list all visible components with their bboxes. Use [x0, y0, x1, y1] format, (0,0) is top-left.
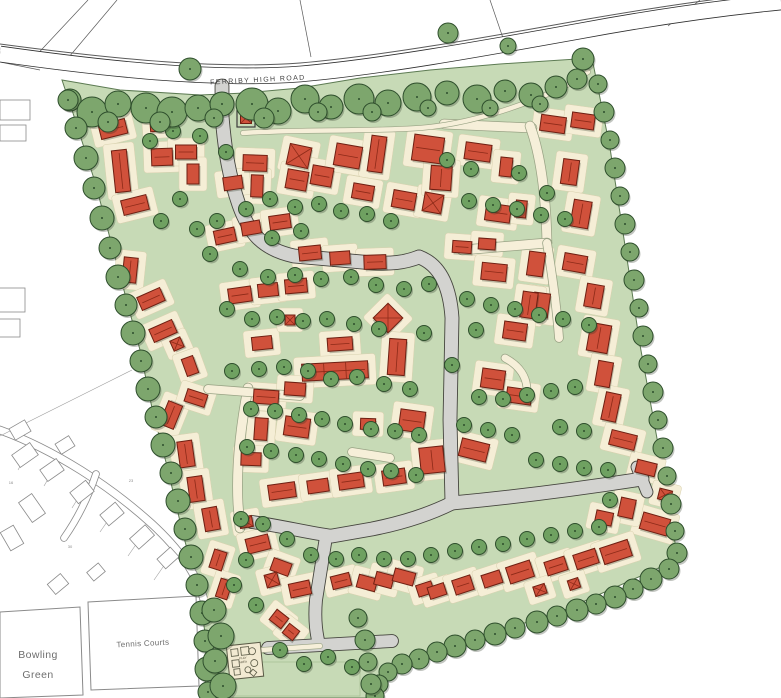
existing-house-outline [0, 525, 23, 551]
tree-center-dot [353, 323, 355, 325]
tree-center-dot [662, 447, 664, 449]
building [176, 145, 199, 161]
tree-center-dot [530, 94, 532, 96]
tree-center-dot [231, 370, 233, 372]
existing-house-outline [0, 100, 30, 120]
building [480, 262, 508, 284]
roof-line [155, 157, 170, 158]
building-footprint [499, 157, 513, 177]
tree-center-dot [246, 446, 248, 448]
tree-center-dot [657, 419, 659, 421]
tree-center-dot [327, 656, 329, 658]
building [480, 368, 507, 392]
tree-center-dot [502, 398, 504, 400]
tree-center-dot [170, 472, 172, 474]
tree-center-dot [666, 475, 668, 477]
site-plan-map: FERRIBY HIGH ROADBowlingGreenTennis Cour… [0, 0, 781, 698]
building [570, 112, 597, 132]
tree-center-dot [624, 223, 626, 225]
building [526, 251, 547, 279]
tree-center-dot [317, 111, 319, 113]
tree-center-dot [582, 58, 584, 60]
tree-center-dot [357, 617, 359, 619]
tree-center-dot [340, 210, 342, 212]
tree-center-dot [576, 78, 578, 80]
tree-center-dot [609, 499, 611, 501]
tree-center-dot [576, 609, 578, 611]
tree-center-dot [255, 604, 257, 606]
tree-center-dot [358, 98, 360, 100]
tree-center-dot [258, 368, 260, 370]
tree-center-dot [199, 135, 201, 137]
tree-center-dot [222, 685, 224, 687]
tree-center-dot [652, 391, 654, 393]
tree-center-dot [514, 627, 516, 629]
tree-center-dot [583, 430, 585, 432]
tree-center-dot [270, 450, 272, 452]
tree-center-dot [418, 658, 420, 660]
tree-center-dot [619, 195, 621, 197]
tree-center-dot [428, 283, 430, 285]
tree-center-dot [676, 552, 678, 554]
tree-center-dot [283, 366, 285, 368]
tree-center-dot [371, 111, 373, 113]
building [223, 175, 245, 193]
tree-center-dot [216, 220, 218, 222]
tree-center-dot [213, 117, 215, 119]
tree-center-dot [466, 298, 468, 300]
building [243, 155, 269, 174]
tree-center-dot [300, 230, 302, 232]
tree-center-dot [383, 383, 385, 385]
tree-center-dot [367, 661, 369, 663]
tree-center-dot [117, 103, 119, 105]
tree-center-dot [476, 98, 478, 100]
existing-house-outline [47, 574, 68, 595]
tree-center-dot [320, 278, 322, 280]
tree-center-dot [574, 386, 576, 388]
existing-house-outline [100, 502, 124, 526]
building [452, 240, 473, 255]
tree-center-dot [196, 228, 198, 230]
tree-center-dot [196, 584, 198, 586]
tree-center-dot [559, 426, 561, 428]
tree-center-dot [401, 663, 403, 665]
building-footprint [223, 175, 244, 191]
plot-number: 30 [68, 544, 73, 549]
tree-center-dot [526, 538, 528, 540]
tree-center-dot [490, 304, 492, 306]
tree-center-dot [67, 99, 69, 101]
tree-center-dot [91, 111, 93, 113]
tree-center-dot [474, 639, 476, 641]
building [387, 338, 408, 377]
tree-center-dot [240, 518, 242, 520]
tree-center-dot [559, 463, 561, 465]
tree-center-dot [274, 410, 276, 412]
tree-center-dot [356, 376, 358, 378]
tree-center-dot [251, 103, 253, 105]
building [430, 165, 454, 193]
building [151, 148, 174, 168]
building [187, 164, 201, 186]
building [560, 159, 581, 188]
building-footprint [618, 497, 637, 519]
tree-center-dot [75, 127, 77, 129]
existing-house-outline [0, 288, 25, 312]
tree-center-dot [378, 328, 380, 330]
existing-house-outline [87, 563, 106, 581]
tree-center-dot [416, 96, 418, 98]
tree-center-dot [595, 603, 597, 605]
bowling-green-label-2: Green [22, 669, 53, 681]
tree-center-dot [204, 640, 206, 642]
tree-center-dot [321, 418, 323, 420]
tree-center-dot [514, 308, 516, 310]
tree-center-dot [318, 203, 320, 205]
tree-center-dot [516, 208, 518, 210]
tree-center-dot [451, 364, 453, 366]
existing-house-outline [55, 436, 75, 455]
tree-center-dot [269, 198, 271, 200]
tree-center-dot [330, 106, 332, 108]
tree-center-dot [117, 276, 119, 278]
tree-center-dot [423, 332, 425, 334]
tree-center-dot [375, 284, 377, 286]
tree-center-dot [403, 288, 405, 290]
tree-center-dot [330, 378, 332, 380]
tree-center-dot [454, 645, 456, 647]
tree-center-dot [536, 621, 538, 623]
building-footprint [307, 478, 330, 494]
tree-center-dot [177, 500, 179, 502]
building [539, 114, 568, 136]
tree-center-dot [132, 332, 134, 334]
tree-center-dot [597, 83, 599, 85]
tree-center-dot [670, 503, 672, 505]
building-footprint [241, 220, 262, 236]
tree-center-dot [550, 390, 552, 392]
tree-center-dot [214, 660, 216, 662]
tree-center-dot [650, 578, 652, 580]
tree-center-dot [614, 167, 616, 169]
tree-center-dot [538, 314, 540, 316]
tree-center-dot [562, 318, 564, 320]
tree-center-dot [502, 543, 504, 545]
tree-center-dot [125, 304, 127, 306]
tree-center-dot [409, 388, 411, 390]
tree-center-dot [366, 213, 368, 215]
tree-center-dot [190, 556, 192, 558]
tree-center-dot [526, 394, 528, 396]
building [298, 245, 323, 263]
tree-center-dot [511, 434, 513, 436]
tree-center-dot [642, 335, 644, 337]
tree-center-dot [342, 463, 344, 465]
tree-center-dot [390, 470, 392, 472]
tree-center-dot [226, 308, 228, 310]
tree-center-dot [609, 139, 611, 141]
tree-center-dot [145, 107, 147, 109]
tree-center-dot [307, 370, 309, 372]
tree-center-dot [415, 474, 417, 476]
tree-center-dot [351, 666, 353, 668]
plot-number: 16 [9, 480, 14, 485]
building [502, 321, 529, 343]
building [364, 255, 388, 272]
tree-center-dot [304, 98, 306, 100]
tree-center-dot [335, 558, 337, 560]
tree-center-dot [358, 554, 360, 556]
tree-center-dot [638, 307, 640, 309]
tree-center-dot [350, 276, 352, 278]
tree-center-dot [303, 663, 305, 665]
building-footprint [284, 382, 306, 396]
tree-center-dot [564, 218, 566, 220]
existing-street [64, 474, 96, 538]
tree-center-dot [518, 172, 520, 174]
tree-center-dot [263, 117, 265, 119]
building [284, 382, 307, 399]
tree-center-dot [478, 396, 480, 398]
building [254, 418, 270, 443]
tree-center-dot [184, 528, 186, 530]
plot-number: 23 [129, 478, 134, 483]
tree-center-dot [494, 633, 496, 635]
building [327, 337, 354, 354]
tree-center-dot [487, 429, 489, 431]
building [285, 315, 297, 327]
tree-center-dot [207, 691, 209, 693]
tree-center-dot [344, 423, 346, 425]
building [333, 143, 364, 171]
tree-center-dot [387, 671, 389, 673]
tree-center-dot [162, 444, 164, 446]
tree-center-dot [394, 430, 396, 432]
tree-center-dot [271, 237, 273, 239]
building-footprint [330, 251, 351, 265]
tree-center-dot [225, 151, 227, 153]
building-footprint [251, 175, 264, 197]
tree-center-dot [262, 523, 264, 525]
tree-center-dot [546, 192, 548, 194]
high-road-surface [0, 2, 781, 76]
tree-center-dot [213, 609, 215, 611]
building [478, 238, 497, 252]
tree-center-dot [370, 428, 372, 430]
tree-center-dot [251, 318, 253, 320]
building [422, 192, 446, 216]
tree-center-dot [209, 253, 211, 255]
tree-center-dot [109, 247, 111, 249]
tree-center-dot [504, 90, 506, 92]
tree-center-dot [93, 187, 95, 189]
tree-center-dot [85, 157, 87, 159]
tree-center-dot [447, 32, 449, 34]
tree-center-dot [107, 121, 109, 123]
tree-center-dot [367, 468, 369, 470]
existing-house-outline [0, 125, 26, 141]
tree-center-dot [489, 107, 491, 109]
building [251, 335, 274, 352]
play-area-label-2: AREA [239, 660, 248, 665]
tree-center-dot [629, 251, 631, 253]
tree-center-dot [598, 526, 600, 528]
tree-center-dot [446, 92, 448, 94]
tree-center-dot [647, 363, 649, 365]
tree-center-dot [588, 324, 590, 326]
tree-center-dot [295, 454, 297, 456]
tree-center-dot [149, 140, 151, 142]
tree-center-dot [535, 459, 537, 461]
tree-center-dot [383, 558, 385, 560]
tree-center-dot [446, 159, 448, 161]
tree-center-dot [583, 467, 585, 469]
tree-center-dot [171, 111, 173, 113]
tree-center-dot [233, 584, 235, 586]
tree-center-dot [603, 111, 605, 113]
tree-center-dot [507, 45, 509, 47]
tree-center-dot [326, 318, 328, 320]
building-footprint [526, 251, 545, 277]
tree-center-dot [159, 121, 161, 123]
tree-center-dot [172, 130, 174, 132]
tree-center-dot [220, 635, 222, 637]
building [464, 142, 494, 165]
tree-center-dot [267, 276, 269, 278]
tree-center-dot [239, 268, 241, 270]
tree-center-dot [478, 546, 480, 548]
tree-center-dot [470, 168, 472, 170]
tree-center-dot [427, 107, 429, 109]
tree-center-dot [407, 558, 409, 560]
tree-center-dot [140, 360, 142, 362]
tree-center-dot [468, 200, 470, 202]
tree-center-dot [155, 416, 157, 418]
tree-center-dot [179, 198, 181, 200]
site-plan: FERRIBY HIGH ROADBowlingGreenTennis Cour… [0, 0, 781, 698]
tree-center-dot [197, 107, 199, 109]
tree-center-dot [607, 469, 609, 471]
tree-center-dot [298, 414, 300, 416]
high-road-layer [0, 0, 781, 76]
tree-center-dot [550, 534, 552, 536]
tree-center-dot [310, 554, 312, 556]
tree-center-dot [390, 220, 392, 222]
tree-center-dot [302, 320, 304, 322]
tree-center-dot [539, 103, 541, 105]
existing-house-outline [0, 319, 20, 337]
tree-center-dot [221, 103, 223, 105]
tree-center-dot [492, 204, 494, 206]
field-boundary-line [300, 0, 311, 57]
tree-center-dot [632, 588, 634, 590]
tree-center-dot [294, 274, 296, 276]
tree-center-dot [286, 538, 288, 540]
tree-center-dot [463, 424, 465, 426]
tree-center-dot [245, 559, 247, 561]
bowling-green-label-1: Bowling [18, 649, 58, 661]
building [251, 175, 265, 199]
building [330, 251, 352, 267]
building-footprint [478, 238, 496, 250]
tree-center-dot [364, 639, 366, 641]
tree-center-dot [370, 683, 372, 685]
building-footprint [254, 418, 269, 441]
roof-line [367, 262, 383, 263]
building [286, 143, 314, 170]
tree-center-dot [387, 102, 389, 104]
tree-center-dot [318, 458, 320, 460]
tree-center-dot [633, 279, 635, 281]
tree-center-dot [101, 217, 103, 219]
building-footprint [251, 335, 272, 350]
tree-center-dot [436, 651, 438, 653]
tree-center-dot [674, 530, 676, 532]
tree-center-dot [668, 568, 670, 570]
tree-center-dot [294, 206, 296, 208]
tree-center-dot [540, 214, 542, 216]
building [310, 165, 336, 190]
tree-center-dot [189, 68, 191, 70]
tree-center-dot [555, 86, 557, 88]
building [307, 478, 331, 496]
tree-center-dot [556, 615, 558, 617]
tree-center-dot [454, 550, 456, 552]
tree-center-dot [160, 220, 162, 222]
tree-center-dot [276, 316, 278, 318]
tree-center-dot [147, 388, 149, 390]
building [269, 213, 294, 232]
existing-house-outline [19, 494, 46, 523]
tree-center-dot [614, 596, 616, 598]
building [285, 169, 311, 194]
tree-center-dot [430, 554, 432, 556]
tree-center-dot [250, 408, 252, 410]
tree-center-dot [475, 329, 477, 331]
tree-center-dot [245, 208, 247, 210]
tree-center-dot [279, 649, 281, 651]
tree-center-dot [418, 434, 420, 436]
tree-center-dot [277, 110, 279, 112]
building-footprint [187, 164, 199, 184]
tree-center-dot [574, 530, 576, 532]
